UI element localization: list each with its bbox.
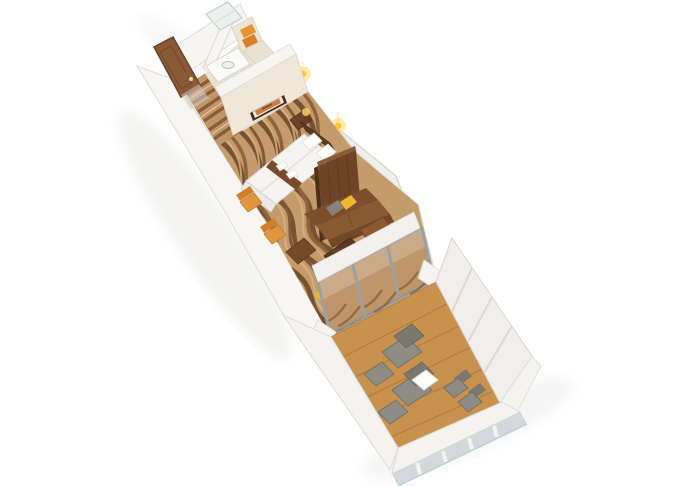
washbasin: [222, 62, 234, 69]
table-lamp-icon: [302, 108, 310, 116]
door-handle-icon: [189, 77, 193, 81]
floorplan-stage: [0, 0, 680, 486]
floorplan-render: [0, 0, 680, 486]
